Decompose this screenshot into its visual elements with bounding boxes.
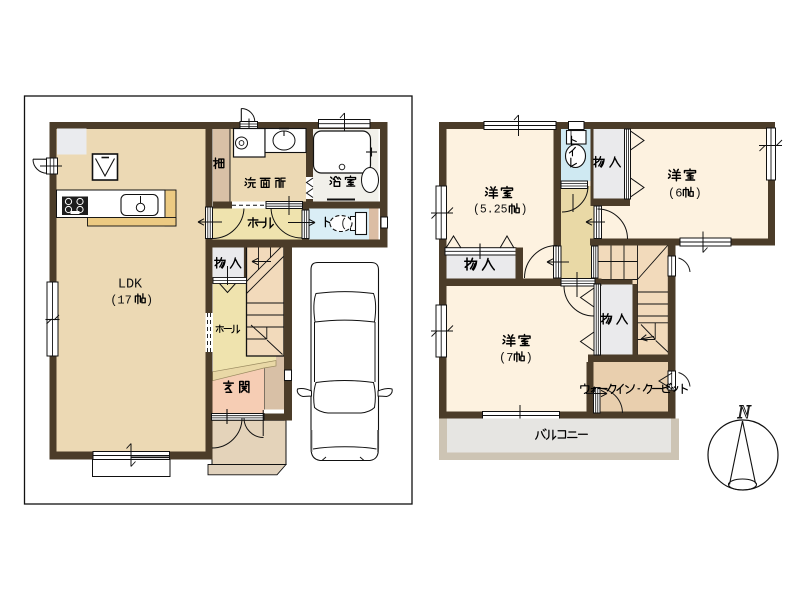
svg-text:(5.25: (5.25 — [473, 204, 508, 217]
svg-text:N: N — [737, 402, 752, 423]
svg-text:(6: (6 — [668, 187, 682, 201]
svg-text:): ) — [146, 294, 153, 308]
svg-text:(7: (7 — [499, 351, 513, 365]
svg-text:): ) — [521, 204, 528, 217]
svg-text:): ) — [695, 187, 702, 201]
svg-text:(17: (17 — [110, 294, 132, 308]
svg-text:LDK: LDK — [118, 278, 143, 293]
svg-text:): ) — [526, 351, 533, 365]
